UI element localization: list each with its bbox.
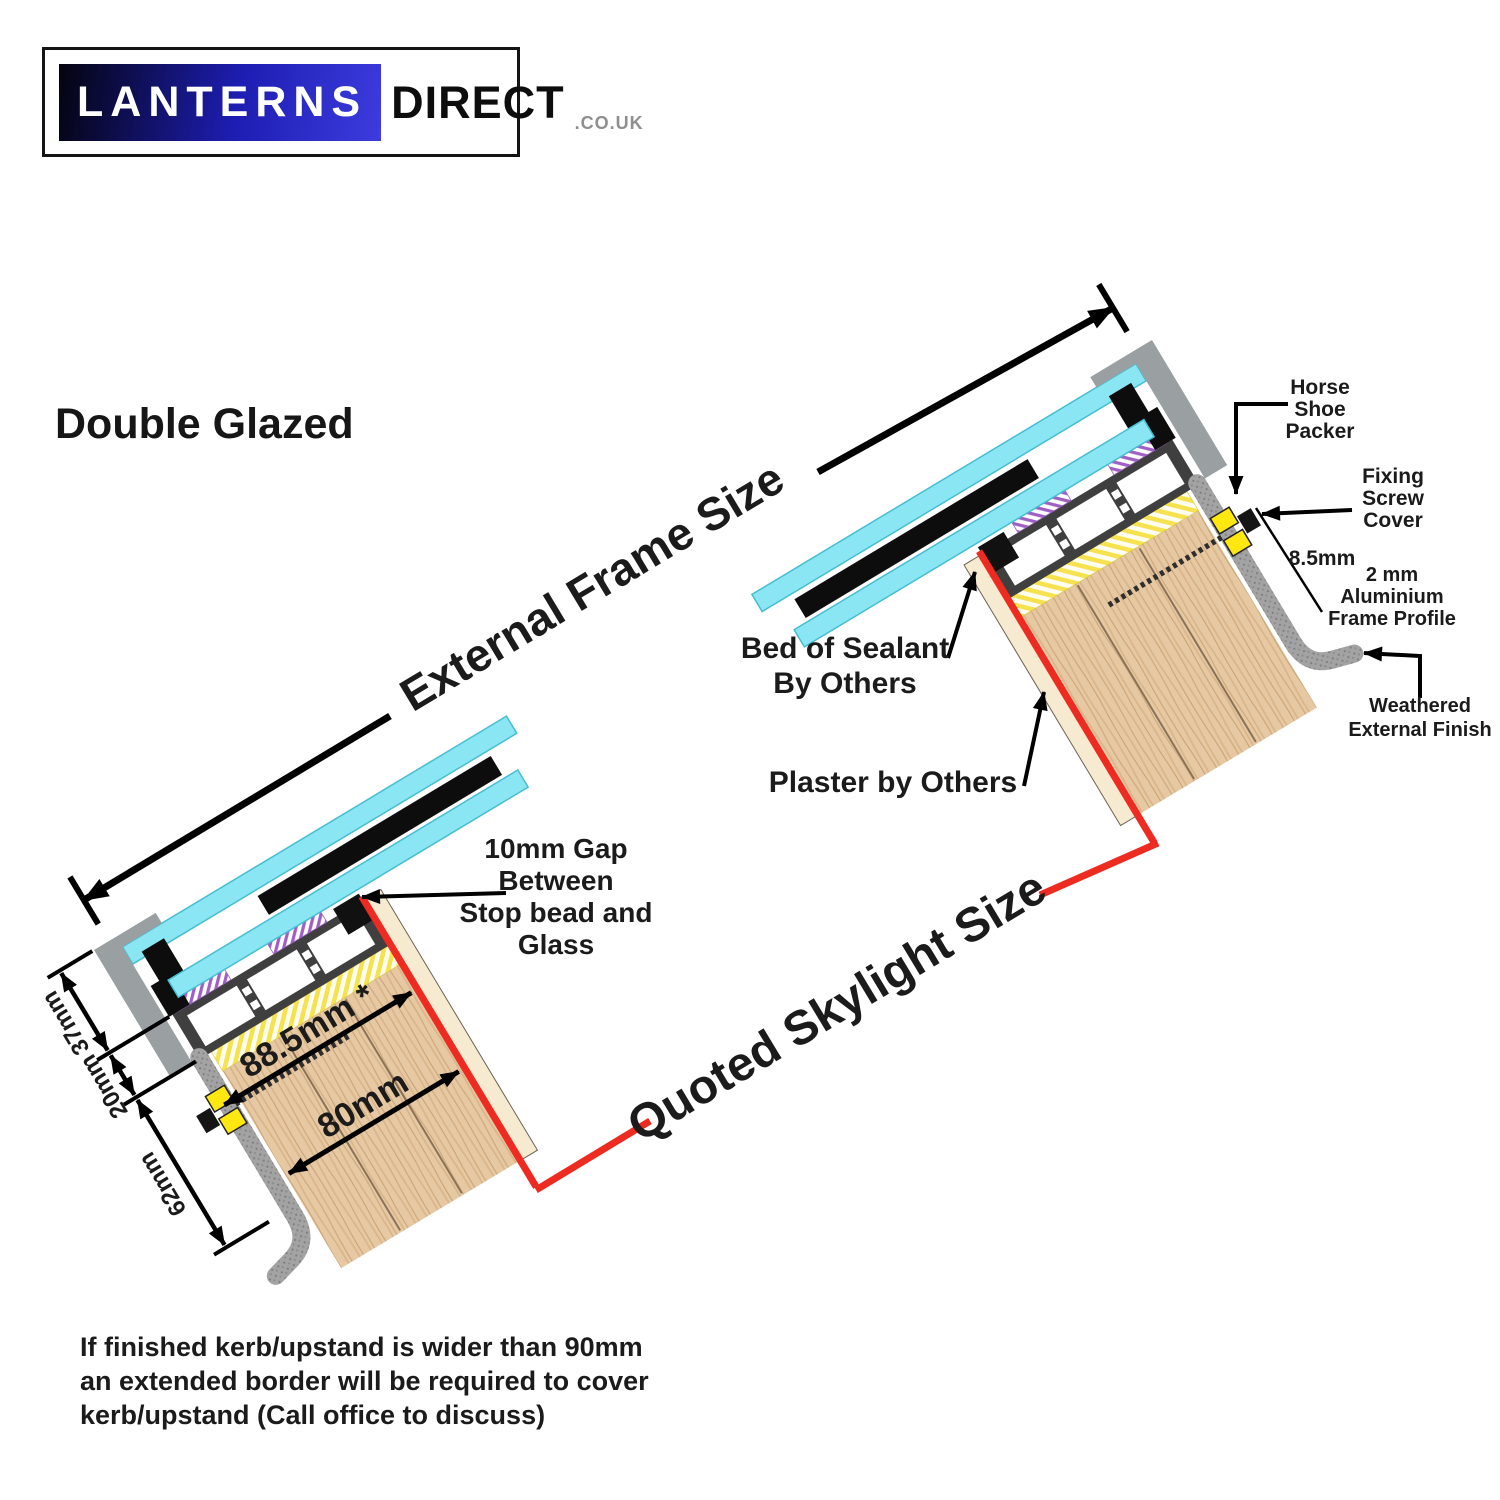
skylight-cross-section-diagram: 37mm 20mm 62mm 88.5mm * 80mm External Fr… bbox=[0, 0, 1500, 1500]
frame-profile-label-3: Frame Profile bbox=[1328, 608, 1456, 630]
fixing-screw-cover-label-3: Cover bbox=[1363, 509, 1423, 532]
frame-profile-label-1: 2 mm bbox=[1366, 564, 1418, 586]
gap-label-4: Glass bbox=[518, 929, 594, 960]
quoted-skylight-size-label: Quoted Skylight Size bbox=[619, 861, 1056, 1152]
dim-62mm: 62mm bbox=[133, 1147, 192, 1220]
screw-offset-label: 8.5mm bbox=[1289, 547, 1356, 570]
horse-shoe-packer-label-1: Horse bbox=[1290, 376, 1350, 399]
dim-20mm: 20mm bbox=[75, 1050, 134, 1123]
bed-of-sealant-label-1: Bed of Sealant bbox=[741, 632, 949, 665]
footnote: If finished kerb/upstand is wider than 9… bbox=[80, 1330, 649, 1432]
gap-label-3: Stop bead and bbox=[460, 897, 653, 928]
fixing-screw-cover-label-1: Fixing bbox=[1362, 465, 1424, 488]
page: LANTERNS DIRECT .CO.UK Double Glazed bbox=[0, 0, 1500, 1500]
external-frame-size-dimension: External Frame Size bbox=[84, 308, 1113, 900]
fixing-screw-cover-label-2: Screw bbox=[1362, 487, 1425, 510]
horse-shoe-packer-label-3: Packer bbox=[1286, 420, 1355, 443]
weathered-finish-label-1: Weathered bbox=[1369, 695, 1471, 717]
bed-of-sealant-label-2: By Others bbox=[773, 667, 916, 700]
frame-profile-label-2: Aluminium bbox=[1340, 586, 1443, 608]
gap-label-2: Between bbox=[498, 865, 613, 896]
external-frame-size-label: External Frame Size bbox=[391, 451, 793, 721]
dim-37mm: 37mm bbox=[37, 986, 96, 1059]
quoted-skylight-size-dimension: Quoted Skylight Size bbox=[536, 843, 1158, 1190]
footnote-line: kerb/upstand (Call office to discuss) bbox=[80, 1398, 649, 1432]
weathered-finish-label-2: External Finish bbox=[1348, 719, 1491, 741]
gap-label-1: 10mm Gap bbox=[484, 833, 627, 864]
plaster-label: Plaster by Others bbox=[769, 766, 1017, 799]
left-edge-section: 37mm 20mm 62mm 88.5mm * 80mm bbox=[0, 642, 722, 1358]
footnote-line: an extended border will be required to c… bbox=[80, 1364, 649, 1398]
horse-shoe-packer-label-2: Shoe bbox=[1294, 398, 1345, 421]
right-edge-section bbox=[707, 270, 1384, 954]
footnote-line: If finished kerb/upstand is wider than 9… bbox=[80, 1330, 649, 1364]
